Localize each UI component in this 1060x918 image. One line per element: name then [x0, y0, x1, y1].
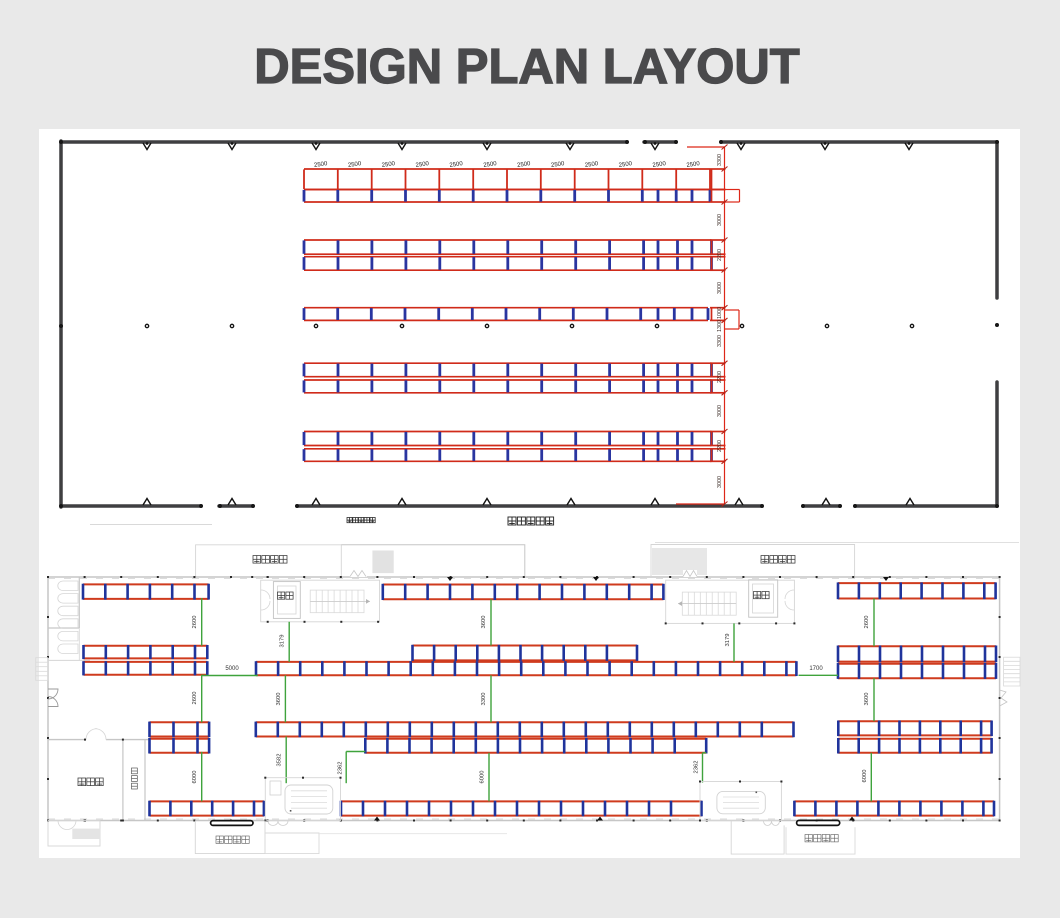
- svg-text:3300: 3300: [717, 154, 723, 166]
- svg-text:2200: 2200: [717, 371, 723, 383]
- svg-text:2200: 2200: [717, 249, 723, 261]
- svg-text:2600: 2600: [192, 616, 198, 629]
- svg-text:2600: 2600: [192, 692, 198, 705]
- svg-text:3000: 3000: [717, 405, 723, 417]
- svg-text:5000: 5000: [225, 666, 239, 672]
- svg-text:2600: 2600: [864, 616, 870, 629]
- svg-text:1700: 1700: [809, 666, 823, 672]
- svg-text:3000: 3000: [717, 476, 723, 488]
- svg-text:3000: 3000: [717, 214, 723, 226]
- svg-text:3179: 3179: [280, 635, 286, 648]
- svg-text:3582: 3582: [277, 754, 283, 767]
- svg-text:3000: 3000: [717, 282, 723, 294]
- svg-text:6000: 6000: [192, 771, 198, 784]
- svg-text:1000: 1000: [717, 307, 723, 319]
- svg-text:3300: 3300: [717, 335, 723, 347]
- svg-text:3600: 3600: [481, 616, 487, 629]
- svg-text:2362: 2362: [694, 761, 700, 774]
- svg-text:1300: 1300: [717, 320, 723, 332]
- svg-text:2362: 2362: [338, 762, 344, 775]
- svg-text:6000: 6000: [480, 771, 486, 784]
- svg-text:2200: 2200: [717, 440, 723, 452]
- svg-text:3300: 3300: [481, 693, 487, 706]
- svg-text:3600: 3600: [276, 693, 282, 706]
- svg-text:6000: 6000: [862, 770, 868, 783]
- svg-text:3179: 3179: [725, 634, 731, 647]
- svg-text:3600: 3600: [864, 693, 870, 706]
